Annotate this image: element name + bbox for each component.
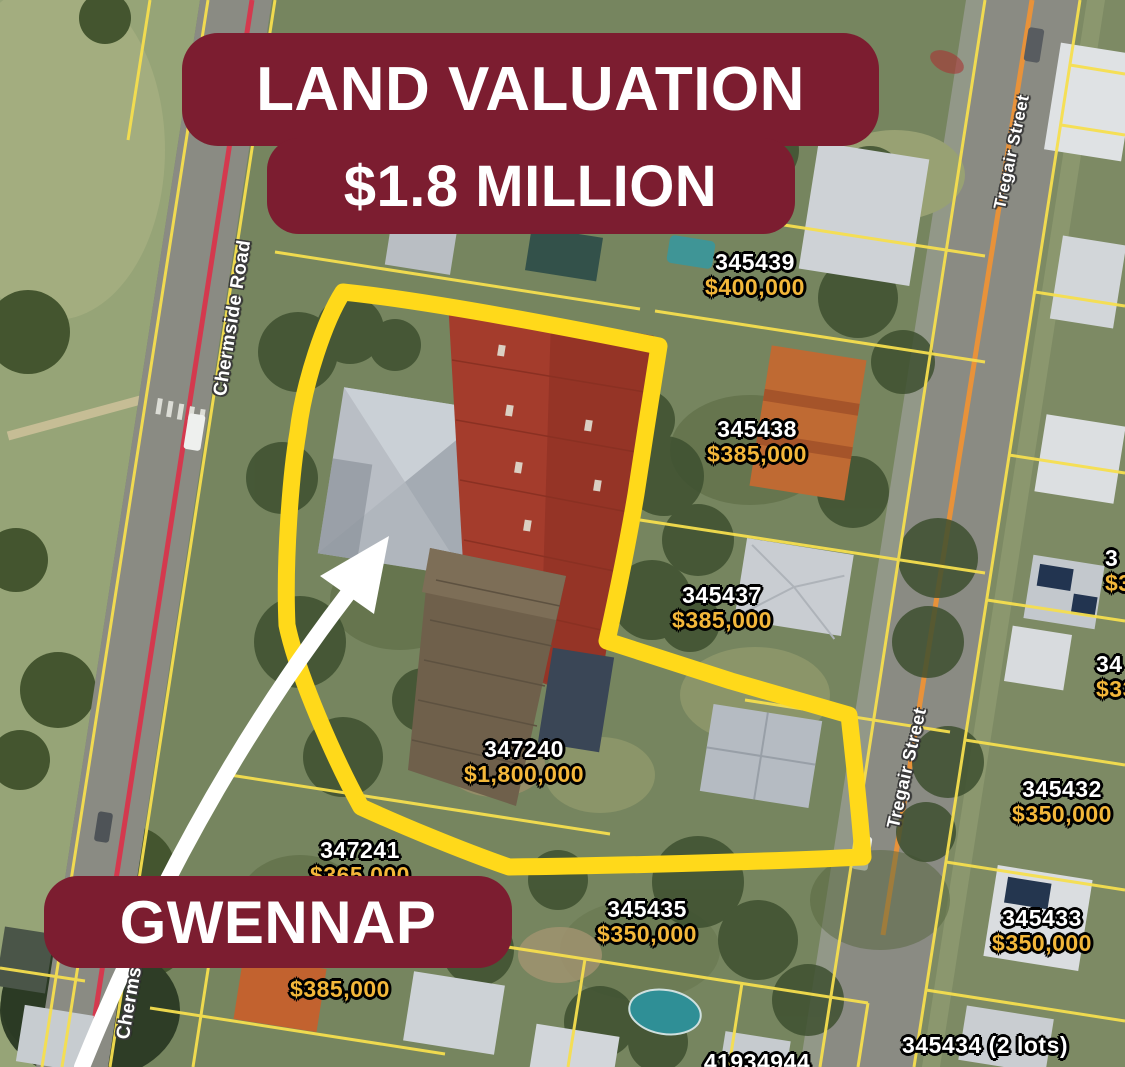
property-name-banner: GWENNAP (44, 876, 512, 968)
map-screenshot: 345439 $400,000 345438 $385,000 345437 $… (0, 0, 1125, 1067)
valuation-banner-title: LAND VALUATION (182, 33, 879, 146)
valuation-banner-amount: $1.8 MILLION (267, 138, 795, 234)
solar-house (1023, 555, 1104, 629)
valuation-banner: LAND VALUATION $1.8 MILLION (182, 33, 879, 234)
lower-house-roof (700, 704, 822, 808)
